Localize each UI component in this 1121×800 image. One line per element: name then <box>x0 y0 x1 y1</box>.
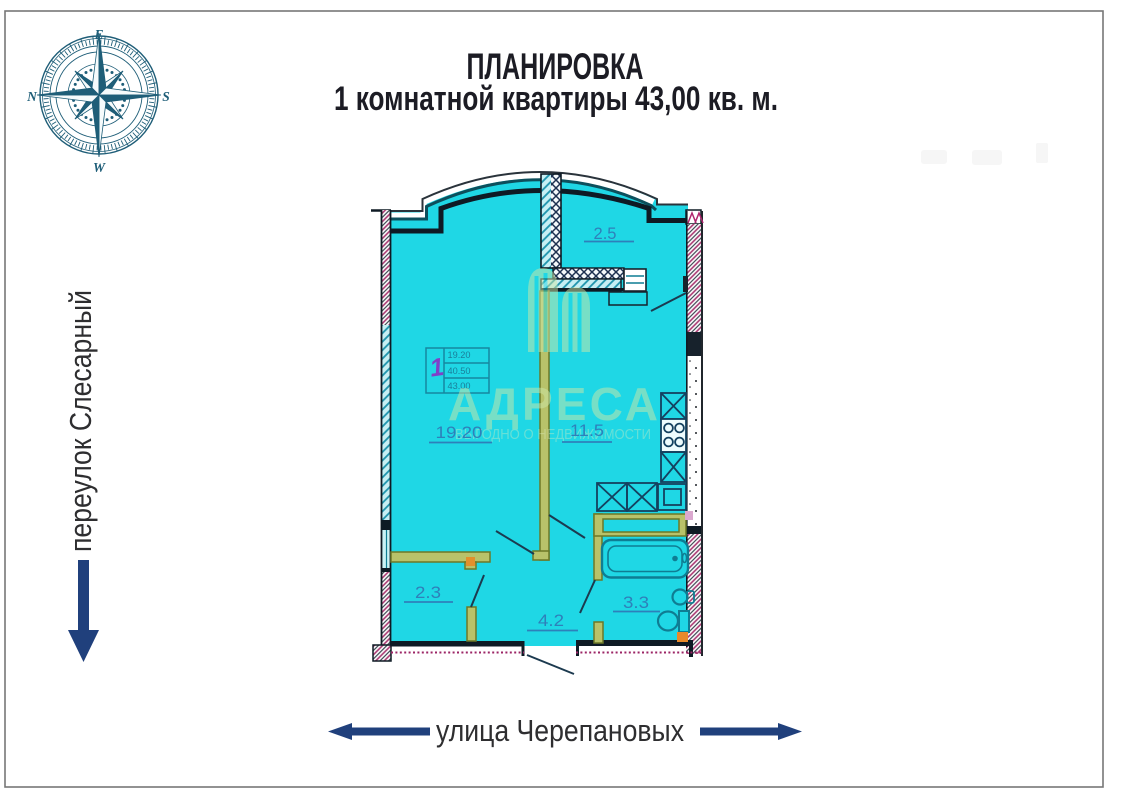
svg-text:переулок Слесарный: переулок Слесарный <box>63 290 98 552</box>
svg-text:S: S <box>162 89 170 104</box>
svg-text:3.3: 3.3 <box>623 593 649 612</box>
svg-text:улица Черепановых: улица Черепановых <box>436 713 684 748</box>
svg-text:N: N <box>26 89 38 104</box>
svg-text:4.2: 4.2 <box>538 611 564 630</box>
svg-text:W: W <box>93 160 106 175</box>
svg-text:2.5: 2.5 <box>594 224 617 243</box>
svg-text:2.3: 2.3 <box>415 583 441 602</box>
svg-text:19.20: 19.20 <box>436 423 483 442</box>
svg-text:19.20: 19.20 <box>448 350 471 361</box>
svg-text:E: E <box>93 27 103 42</box>
svg-text:40.50: 40.50 <box>448 366 471 377</box>
svg-text:1 комнатной квартиры 43,00 кв.: 1 комнатной квартиры 43,00 кв. м. <box>334 80 778 118</box>
svg-text:ВЫГОДНО О НЕДВИЖИМОСТИ: ВЫГОДНО О НЕДВИЖИМОСТИ <box>455 426 651 443</box>
svg-text:11.5: 11.5 <box>570 421 604 440</box>
